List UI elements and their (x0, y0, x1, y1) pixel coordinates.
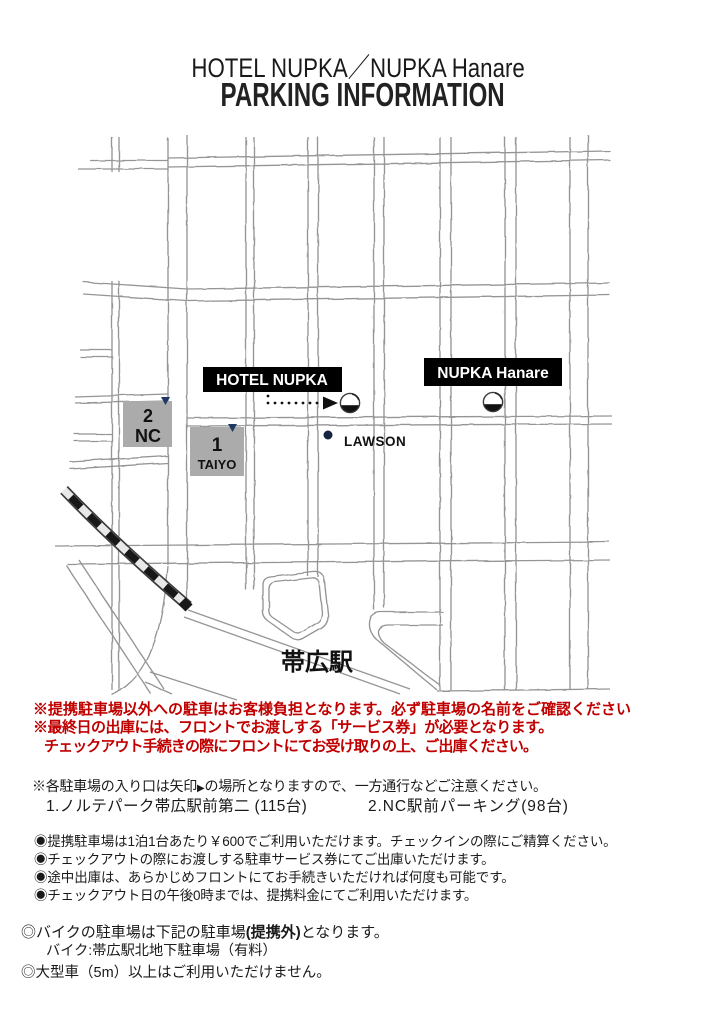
svg-text:LAWSON: LAWSON (344, 434, 406, 449)
svg-text:1: 1 (212, 435, 223, 456)
svg-text:帯広駅: 帯広駅 (281, 649, 353, 676)
svg-text:TAIYO: TAIYO (198, 457, 237, 472)
svg-text:NC: NC (135, 426, 161, 446)
svg-text:HOTEL NUPKA: HOTEL NUPKA (216, 372, 328, 389)
svg-text:NUPKA Hanare: NUPKA Hanare (437, 365, 549, 382)
svg-text:2: 2 (143, 406, 153, 426)
